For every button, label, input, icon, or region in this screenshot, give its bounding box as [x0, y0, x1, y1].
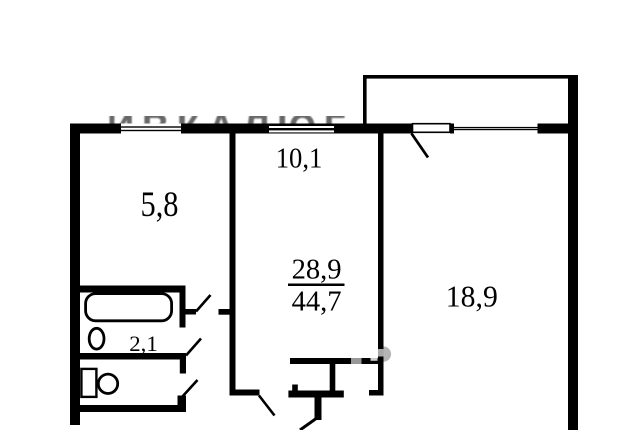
svg-text:5,8: 5,8 [141, 184, 179, 224]
svg-text:10,1: 10,1 [276, 144, 323, 175]
svg-text:44,7: 44,7 [292, 285, 342, 317]
svg-text:28,9: 28,9 [292, 254, 342, 286]
svg-text:2,1: 2,1 [129, 331, 158, 356]
svg-text:18,9: 18,9 [446, 279, 498, 314]
